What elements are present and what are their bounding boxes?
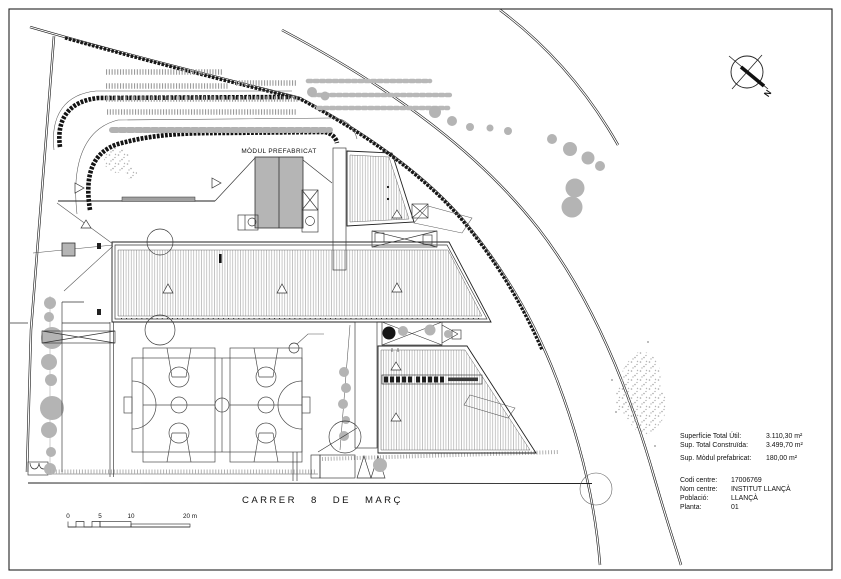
centre-label: Planta: — [680, 504, 702, 511]
utility-box — [62, 243, 75, 256]
centre-label: Població: — [680, 495, 708, 502]
basketball-court-left — [143, 348, 215, 462]
north-arrow: N — [729, 55, 773, 99]
bench — [122, 197, 195, 202]
svg-text:Planta:01: Planta:01 — [680, 504, 739, 511]
centre-info: Codi centre:17006769 Nom centre:INSTITUT… — [680, 477, 791, 511]
hedge-upper — [59, 97, 290, 147]
scale-tick-5: 5 — [98, 513, 102, 520]
area-summary: Superfície Total Útil:3.110,30 m² Sup. T… — [680, 431, 803, 462]
svg-text:Nom centre:INSTITUT LLANÇÀ: Nom centre:INSTITUT LLANÇÀ — [680, 484, 791, 493]
basketball-court-right — [230, 348, 302, 462]
centre-value: INSTITUT LLANÇÀ — [731, 484, 791, 493]
site-plan-drawing: N 0 5 10 20 m MÒDUL PREFABRICAT CARRER 8… — [0, 0, 841, 579]
area-label: Sup. Total Construïda: — [680, 442, 748, 449]
scale-tick-10: 10 — [127, 513, 135, 520]
area-value: 3.499,70 m² — [766, 442, 803, 449]
outdoor-stairs — [355, 322, 377, 448]
main-building — [112, 242, 491, 322]
evergreen-tree — [383, 327, 396, 340]
north-label: N — [762, 88, 774, 99]
svg-text:Sup. Mòdul prefabricat:180,00: Sup. Mòdul prefabricat:180,00 m² — [680, 455, 798, 462]
svg-text:Població:LLANÇÀ: Població:LLANÇÀ — [680, 493, 758, 502]
tree-outline — [145, 315, 175, 345]
canopy-upper — [372, 231, 437, 247]
area-value: 3.110,30 m² — [766, 433, 803, 440]
scale-tick-20: 20 m — [183, 513, 197, 520]
sports-courts — [124, 348, 310, 462]
area-value: 180,00 m² — [766, 455, 798, 462]
street-label: CARRER 8 DE MARÇ — [242, 495, 403, 506]
centre-value: LLANÇÀ — [731, 493, 758, 502]
svg-text:Superfície Total Útil:3.110,30: Superfície Total Útil:3.110,30 m² — [680, 431, 803, 440]
svg-text:Codi centre:17006769: Codi centre:17006769 — [680, 477, 762, 484]
buildings — [112, 148, 536, 453]
scale-bar: 0 5 10 20 m — [66, 513, 197, 527]
centre-value: 01 — [731, 504, 739, 511]
centre-label: Nom centre: — [680, 486, 718, 493]
scale-tick-0: 0 — [66, 513, 70, 520]
lower-building — [378, 346, 536, 453]
area-label: Superfície Total Útil: — [680, 431, 741, 440]
drawing-sheet: N 0 5 10 20 m MÒDUL PREFABRICAT CARRER 8… — [0, 0, 841, 579]
svg-text:Sup. Total Construïda:3.499,70: Sup. Total Construïda:3.499,70 m² — [680, 442, 803, 449]
modul-prefabricat — [215, 157, 332, 232]
modul-label: MÒDUL PREFABRICAT — [241, 146, 316, 155]
centre-value: 17006769 — [731, 477, 762, 484]
centre-label: Codi centre: — [680, 477, 717, 484]
area-label: Sup. Mòdul prefabricat: — [680, 455, 751, 462]
canopy-lower — [382, 322, 461, 345]
